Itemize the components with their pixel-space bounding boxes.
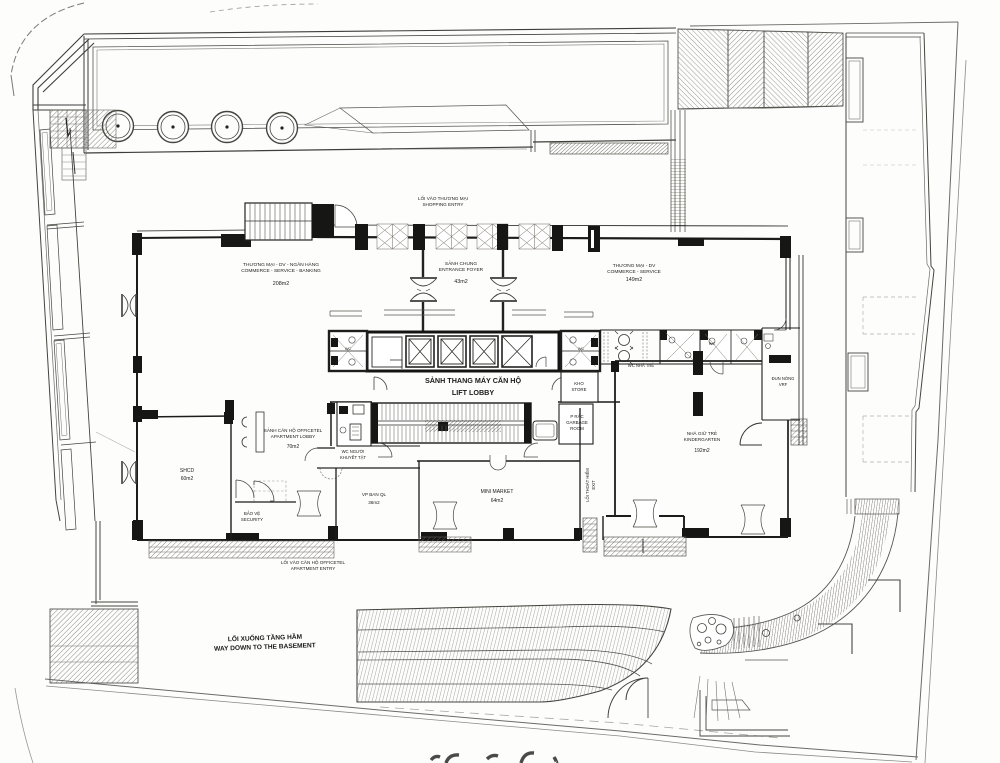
- svg-text:LỐI XUỐNG TẦNG HẦM: LỐI XUỐNG TẦNG HẦM: [228, 631, 303, 644]
- svg-text:LỐI VÀO THƯƠNG MẠI: LỐI VÀO THƯƠNG MẠI: [418, 195, 468, 201]
- svg-text:WC NGƯỜI: WC NGƯỜI: [342, 449, 365, 454]
- svg-text:43m2: 43m2: [454, 279, 468, 285]
- svg-text:NHÀ GIỮ TRẺ: NHÀ GIỮ TRẺ: [687, 430, 717, 436]
- svg-text:THƯƠNG MẠI - DV: THƯƠNG MẠI - DV: [613, 263, 656, 269]
- svg-text:STORE: STORE: [571, 387, 586, 392]
- svg-text:SHCD: SHCD: [180, 468, 195, 474]
- svg-text:BẢO VỆ: BẢO VỆ: [244, 511, 260, 516]
- svg-text:APARTMENT ENTRY: APARTMENT ENTRY: [291, 566, 336, 571]
- svg-text:60m2: 60m2: [181, 476, 194, 482]
- svg-text:ROOM: ROOM: [570, 426, 584, 431]
- svg-text:LIFT LOBBY: LIFT LOBBY: [452, 388, 495, 397]
- svg-text:KINDERGARTEN: KINDERGARTEN: [684, 437, 720, 442]
- svg-text:WAY DOWN TO THE BASEMENT: WAY DOWN TO THE BASEMENT: [214, 642, 316, 653]
- svg-text:COMMERCE - SERVICE - BANKING: COMMERCE - SERVICE - BANKING: [241, 268, 321, 274]
- svg-text:WC: WC: [709, 342, 716, 346]
- svg-text:WC: WC: [578, 347, 585, 351]
- svg-text:149m2: 149m2: [626, 277, 642, 283]
- svg-text:KHO: KHO: [574, 381, 584, 386]
- svg-text:36m2: 36m2: [368, 500, 380, 505]
- svg-text:KHUYẾT TẬT: KHUYẾT TẬT: [340, 455, 366, 460]
- svg-text:SECURITY: SECURITY: [241, 517, 263, 522]
- svg-text:VP BAN QL: VP BAN QL: [362, 492, 387, 497]
- svg-text:192m2: 192m2: [694, 448, 710, 454]
- svg-text:SẢNH CHUNG: SẢNH CHUNG: [445, 260, 478, 267]
- svg-text:APARTMENT LOBBY: APARTMENT LOBBY: [271, 434, 315, 439]
- svg-text:THƯƠNG MẠI - DV - NGÂN HÀNG: THƯƠNG MẠI - DV - NGÂN HÀNG: [243, 261, 319, 268]
- svg-text:SẢNH THANG MÁY CĂN HỘ: SẢNH THANG MÁY CĂN HỘ: [425, 376, 522, 385]
- svg-text:MINI MARKET: MINI MARKET: [481, 489, 514, 495]
- svg-text:LỐI THOÁT HIỂM: LỐI THOÁT HIỂM: [585, 468, 590, 502]
- svg-text:ENTRANCE FOYER: ENTRANCE FOYER: [439, 267, 484, 273]
- svg-text:SẢNH CĂN HỘ OFFICETEL: SẢNH CĂN HỘ OFFICETEL: [264, 427, 323, 433]
- svg-text:VRF: VRF: [779, 382, 788, 387]
- svg-text:SHOPPING ENTRY: SHOPPING ENTRY: [422, 202, 463, 207]
- svg-text:70m2: 70m2: [287, 444, 300, 450]
- svg-text:COMMERCE - SERVICE: COMMERCE - SERVICE: [607, 269, 661, 275]
- svg-text:WC NHÀ TRẺ: WC NHÀ TRẺ: [628, 363, 655, 368]
- svg-text:64m2: 64m2: [491, 498, 504, 504]
- svg-text:ĐUN NÓNG: ĐUN NÓNG: [772, 376, 795, 381]
- svg-text:GARBAGE: GARBAGE: [566, 420, 588, 425]
- svg-text:P RÁC: P RÁC: [570, 414, 583, 419]
- svg-text:LỐI VÀO CĂN HỘ OFFICETEL: LỐI VÀO CĂN HỘ OFFICETEL: [281, 559, 346, 565]
- svg-text:EXIT: EXIT: [591, 480, 596, 490]
- svg-text:208m2: 208m2: [273, 281, 289, 287]
- svg-text:WC: WC: [345, 347, 352, 351]
